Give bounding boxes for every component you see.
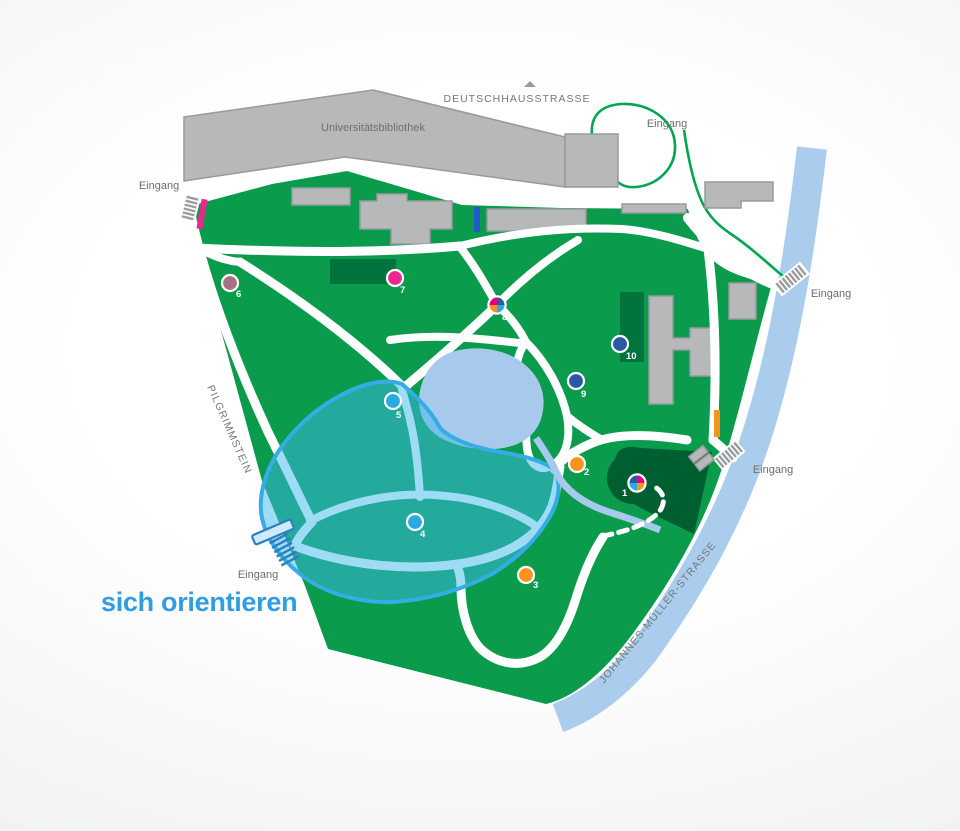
- bar-orange[interactable]: [714, 410, 720, 437]
- path-top: [196, 246, 460, 252]
- north-arrow-icon: [524, 81, 536, 87]
- marker-5-number: 5: [396, 410, 402, 421]
- marker-3-number: 3: [533, 580, 538, 591]
- entrance-label-right-lower: Eingang: [753, 464, 793, 476]
- marker-3-dot: [518, 567, 534, 583]
- entrance-label-right-upper: Eingang: [811, 288, 851, 300]
- hedge-near-7: [330, 259, 396, 284]
- marker-9-number: 9: [581, 389, 586, 400]
- building-loop: [565, 134, 618, 187]
- marker-2-dot: [569, 456, 585, 472]
- marker-10-dot: [612, 336, 628, 352]
- marker-6-number: 6: [236, 289, 241, 300]
- library-label: Universitätsbibliothek: [321, 122, 425, 134]
- entrance-label-top: Eingang: [647, 118, 687, 130]
- marker-8-number: 8: [502, 312, 507, 323]
- marker-5-dot: [385, 393, 401, 409]
- marker-10-number: 10: [626, 351, 637, 362]
- building-square-east: [729, 283, 756, 319]
- campus-map-page: 1 2 3 4 5 6 7: [0, 0, 960, 831]
- street-label-top: DEUTSCHHAUSSTRASSE: [444, 93, 591, 105]
- page-title: sich orientieren: [101, 587, 297, 617]
- marker-7-dot: [387, 270, 403, 286]
- marker-7-number: 7: [400, 285, 405, 296]
- building-northeast: [705, 182, 773, 208]
- marker-2-number: 2: [584, 467, 589, 478]
- building-strip: [622, 204, 686, 213]
- building-small-west: [292, 188, 350, 205]
- marker-4-number: 4: [420, 529, 426, 540]
- entrance-label-bottom-left: Eingang: [238, 569, 278, 581]
- marker-9-dot: [568, 373, 584, 389]
- marker-4-dot: [407, 514, 423, 530]
- marker-1-number: 1: [622, 488, 628, 499]
- entrance-label-top-left: Eingang: [139, 180, 179, 192]
- campus-map: 1 2 3 4 5 6 7: [0, 0, 960, 831]
- bar-blue[interactable]: [474, 207, 480, 232]
